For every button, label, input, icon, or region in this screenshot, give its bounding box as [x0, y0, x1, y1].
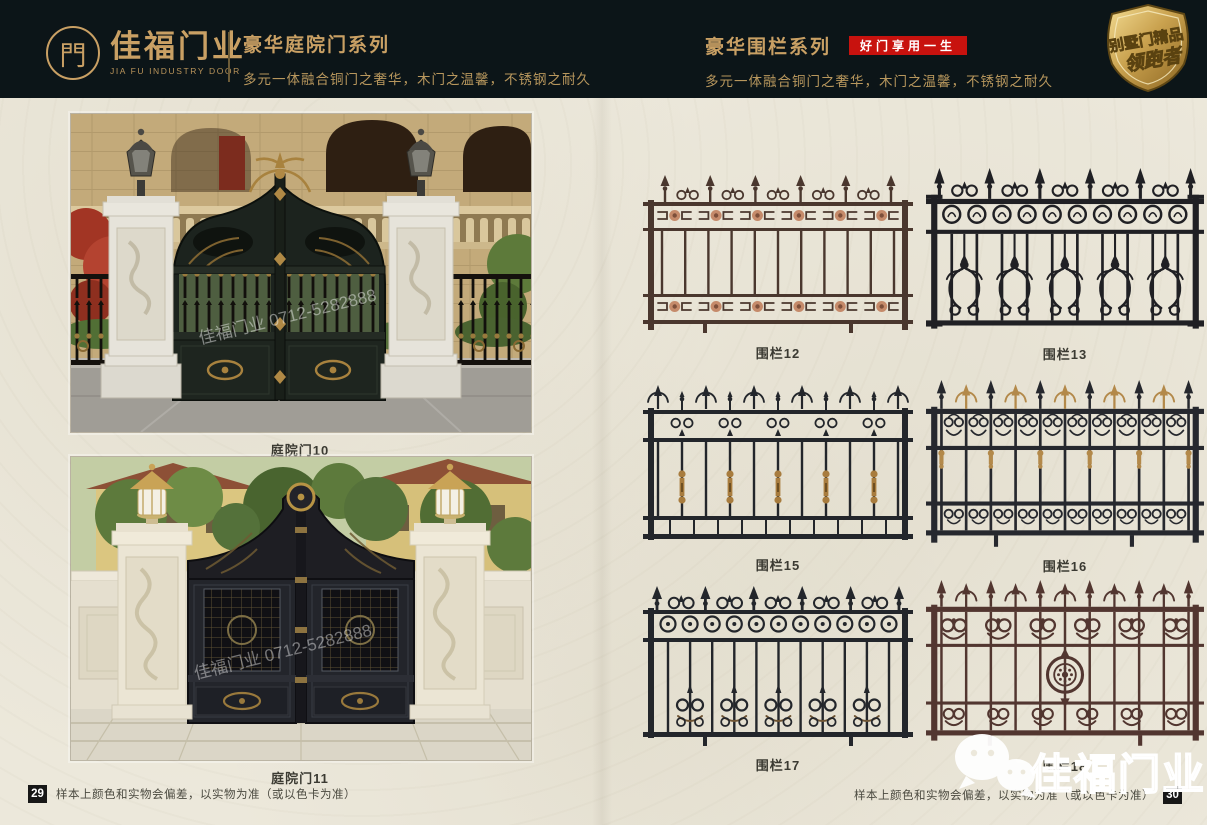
gate-photo-10: 佳福门业 0712-5282888 — [70, 113, 532, 433]
fence-image-17 — [643, 584, 913, 750]
fence-image-12 — [643, 172, 913, 338]
fence-caption: 围栏17 — [643, 755, 913, 774]
series-left-subtitle: 多元一体融合铜门之奢华，木门之温馨，不锈钢之耐久 — [243, 68, 591, 88]
fence-figure: 围栏15 — [643, 384, 913, 574]
header-bar: 門 佳福门业 JIA FU INDUSTRY DOOR 豪华庭院门系列 多元一体… — [0, 0, 1207, 98]
footer-note-left: 样本上颜色和实物会偏差，以实物为准（或以色卡为准） — [56, 786, 356, 802]
fence-caption: 围栏15 — [643, 555, 913, 574]
slogan-badge: 好门享用一生 — [849, 36, 967, 55]
header-divider — [228, 32, 230, 82]
watermark-brand-text: 佳福门业 — [1030, 751, 1206, 798]
fence-figure: 围栏13 — [926, 168, 1204, 363]
fence-caption: 围栏16 — [926, 556, 1204, 575]
brand-name-cn: 佳福门业 — [110, 31, 246, 62]
series-left-title: 豪华庭院门系列 — [243, 30, 591, 57]
series-right: 豪华围栏系列 好门享用一生 多元一体融合铜门之奢华，木门之温馨，不锈钢之耐久 — [705, 32, 1053, 90]
fence-image-16 — [926, 380, 1204, 551]
page-gutter — [592, 98, 612, 825]
fence-figure: 围栏12 — [643, 172, 913, 362]
brand-watermark: 佳福门业 — [950, 731, 1207, 809]
fence-image-13 — [926, 168, 1204, 339]
series-left: 豪华庭院门系列 多元一体融合铜门之奢华，木门之温馨，不锈钢之耐久 — [243, 30, 591, 88]
door-logo-icon: 門 — [46, 26, 100, 80]
gold-shield-badge: 别墅门精品 领跑者 — [1092, 2, 1204, 94]
series-right-title: 豪华围栏系列 — [705, 32, 831, 59]
wechat-icon — [955, 734, 1036, 798]
fence-image-15 — [643, 384, 913, 550]
fence-figure: 围栏16 — [926, 380, 1204, 575]
gate-photo-11: 佳福门业 0712-5282888 — [70, 456, 532, 761]
catalog-spread: 門 佳福门业 JIA FU INDUSTRY DOOR 豪华庭院门系列 多元一体… — [0, 0, 1207, 825]
fence-caption: 围栏12 — [643, 343, 913, 362]
gate-photo-figure: 佳福门业 0712-5282888 庭院门10 — [70, 113, 530, 459]
fence-figure: 围栏17 — [643, 584, 913, 774]
page-number-left: 29 — [28, 785, 47, 803]
fence-image-18 — [926, 580, 1204, 751]
brand-name-en: JIA FU INDUSTRY DOOR — [110, 66, 246, 76]
series-right-subtitle: 多元一体融合铜门之奢华，木门之温馨，不锈钢之耐久 — [705, 70, 1053, 90]
gate-photo-figure: 佳福门业 0712-5282888 庭院门11 — [70, 456, 530, 787]
brand-logo: 門 佳福门业 JIA FU INDUSTRY DOOR — [46, 26, 246, 80]
fence-caption: 围栏13 — [926, 344, 1204, 363]
footer-left: 29 样本上颜色和实物会偏差，以实物为准（或以色卡为准） — [28, 785, 356, 803]
